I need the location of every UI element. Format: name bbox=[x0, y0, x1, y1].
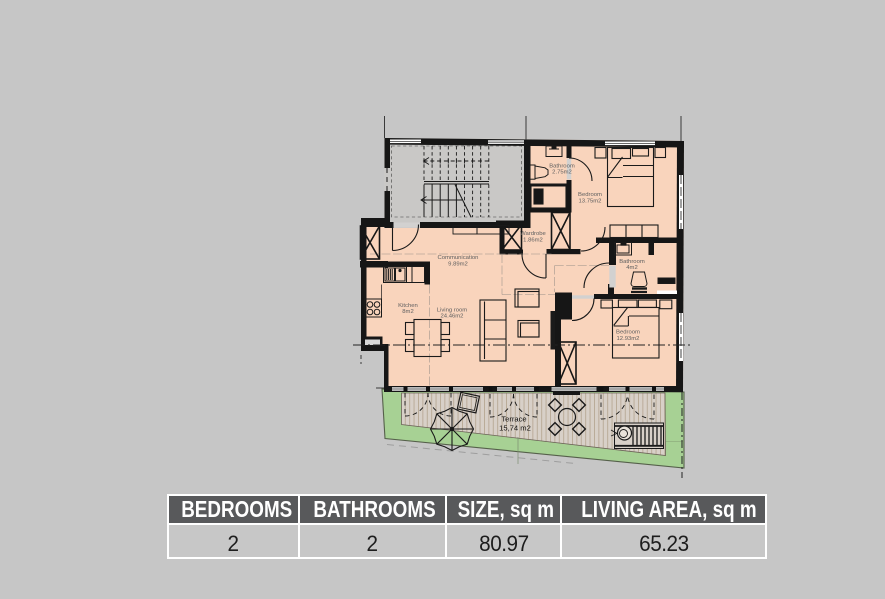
svg-text:2.75m2: 2.75m2 bbox=[552, 170, 572, 176]
svg-text:24.46m2: 24.46m2 bbox=[441, 314, 464, 320]
svg-text:Bedroom: Bedroom bbox=[578, 192, 602, 198]
svg-text:8m2: 8m2 bbox=[402, 309, 413, 315]
svg-text:Communication: Communication bbox=[438, 255, 479, 261]
svg-text:13.75m2: 13.75m2 bbox=[579, 199, 602, 205]
svg-text:Bedroom: Bedroom bbox=[616, 330, 640, 336]
svg-text:9.89m2: 9.89m2 bbox=[448, 262, 468, 268]
svg-text:15,74 m2: 15,74 m2 bbox=[499, 424, 531, 433]
svg-text:Terrace: Terrace bbox=[501, 415, 526, 424]
svg-text:1.86m2: 1.86m2 bbox=[523, 238, 543, 244]
svg-text:4m2: 4m2 bbox=[626, 265, 637, 271]
svg-text:12.93m2: 12.93m2 bbox=[617, 336, 640, 342]
svg-text:Wardrobe: Wardrobe bbox=[520, 231, 546, 237]
